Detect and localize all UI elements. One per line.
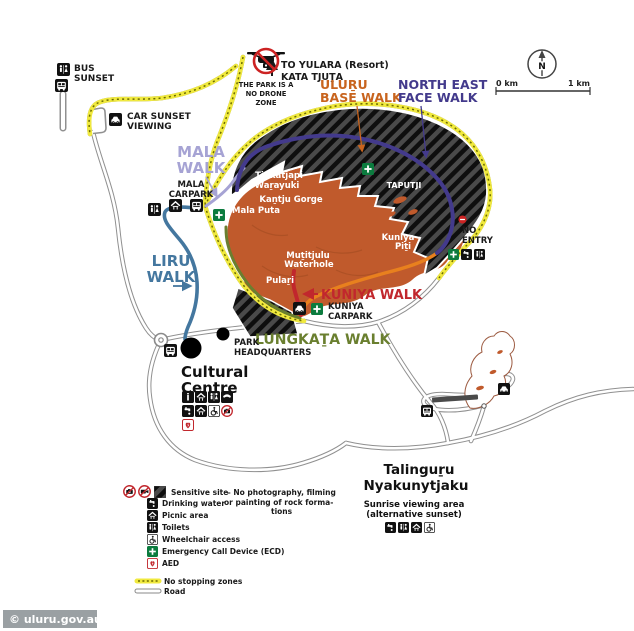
to-yulara-label-1: TO YULARA (Resort) [281,60,389,71]
toilets-icon [148,203,161,216]
park-headquarters-label-1: PARK [234,338,260,348]
talinguru-label-2: Nyakunytjaku [364,478,469,494]
kantju-gorge-label: Kaṉtju Gorge [259,195,322,205]
bus-icon [164,344,177,357]
scale-right: 1 km [568,79,590,88]
scale-bar: 0 km 1 km [496,79,590,95]
car-icon [498,383,510,395]
north-east-face-walk-label-2: FACE WALK [398,90,479,105]
compass-n: N [538,62,546,72]
road-junction-dot [482,404,486,408]
legend-road: Road [164,587,185,596]
park-headquarters-dot [217,328,230,341]
no-entry-label-2: ENTRY [462,236,494,246]
mala-carpark-label-1: MALA [177,180,204,190]
picnic-icon [169,199,182,212]
aed-icon [183,420,194,431]
kuniya-walk-label: KUNIYA WALK [321,288,423,303]
liru-walk-label-2: WALK [147,268,197,286]
compass: N [528,50,556,78]
no-entry-icon [458,215,466,223]
bus-sunset-label-2: SUNSET [74,74,115,84]
wheelchair-icon [147,534,157,544]
talinguru-desc-2: (alternative sunset) [366,510,462,520]
legend-item-drinking-water: Drinking water [162,499,225,508]
legend-item-toilets: Toilets [162,523,190,532]
bus-icon [190,199,203,212]
lungkata-walk-label: LUNGKAṮA WALK [255,332,392,348]
legend-sensitive-line2: or painting of rock forma- [224,498,333,507]
park-headquarters-label-2: HEADQUARTERS [234,348,311,358]
cultural-centre-dot [181,338,202,359]
car-sunset-label-2: VIEWING [127,122,172,132]
ecd-icon [147,546,158,557]
drone-line-3: ZONE [255,99,276,107]
drone-line-2: NO DRONE [246,90,287,98]
car-sunset-label-1: CAR SUNSET [127,112,192,122]
talinguru-desc-1: Sunrise viewing area [364,500,465,510]
toilets-icon [474,249,485,260]
mala-walk-label-2: WALK [177,159,227,177]
ecd-icon [448,249,459,260]
car-icon [293,302,306,315]
kuniya-piti-label-2: Piṯi [395,242,411,252]
wheelchair-icon [208,405,219,416]
bus-icon [55,79,68,92]
cultural-centre-label-2: Centre [181,379,238,397]
pulari-label: Pulaṟi [266,276,294,286]
legend-item-wheelchair: Wheelchair access [162,535,241,544]
drone-notice-text: THE PARK IS A NO DRONE ZONE [239,81,295,107]
legend-sensitive-line1: – No photography, filming [227,488,336,497]
kuniya-carpark-label-2: CARPARK [328,312,373,322]
legend-item-picnic: Picnic area [162,511,208,520]
picnic-icon [195,405,207,417]
toilets-icon [398,522,409,533]
no-filming-icon [139,486,150,497]
taputji-label: TAPUTJI [387,181,422,190]
ecd-icon [311,303,323,315]
watermark-text: © uluru.gov.au [9,613,102,626]
roundabout-centre [159,338,163,342]
ecd-icon [213,209,225,221]
drinking-water-icon [147,498,158,509]
sensitive-site-swatch [154,486,166,498]
toilets-icon [57,63,70,76]
scale-left: 0 km [496,79,518,88]
uluru-base-walk-label-2: BASE WALK [320,90,403,105]
picnic-icon [411,522,422,533]
no-photography-icon [124,486,135,497]
car-icon [109,113,122,126]
legend-no-stopping: No stopping zones [164,577,243,586]
toilets-icon [147,522,158,533]
bus-icon [421,405,433,417]
wheelchair-icon [424,522,434,532]
legend: Sensitive site – No photography, filming… [124,486,336,596]
drinking-water-icon [461,249,472,260]
no-entry-label-1: NO [462,226,476,236]
mala-carpark-label-2: CARPARK [169,190,214,200]
bus-sunset-label-1: BUS [74,64,95,74]
aed-icon [147,558,157,568]
ecd-icon [362,163,374,175]
drinking-water-icon [182,405,194,417]
tjukatjapi-label-2: Waṟayuki [255,181,300,191]
no-drone-icon [247,49,285,73]
talinguru-dune-area [432,332,515,409]
no-photography-icon [222,406,233,417]
mutitjulu-label-2: Waterhole [284,260,334,270]
map-canvas: i [0,0,634,631]
legend-sensitive-line3: tions [271,507,293,516]
picnic-icon [147,510,158,521]
legend-item-ecd: Emergency Call Device (ECD) [162,547,284,556]
mala-puta-label: Mala Puta [232,206,280,216]
kuniya-carpark-label-1: KUNIYA [328,302,364,312]
tjukatjapi-label-1: Tjukatjapi [255,171,303,181]
legend-sensitive-title: Sensitive site [171,488,228,497]
talinguru-label-1: Talinguṟu [384,462,455,478]
watermark: © uluru.gov.au [3,610,102,628]
drinking-water-icon [385,522,396,533]
uluru-park-map: i [0,0,634,631]
legend-item-aed: AED [162,559,179,568]
